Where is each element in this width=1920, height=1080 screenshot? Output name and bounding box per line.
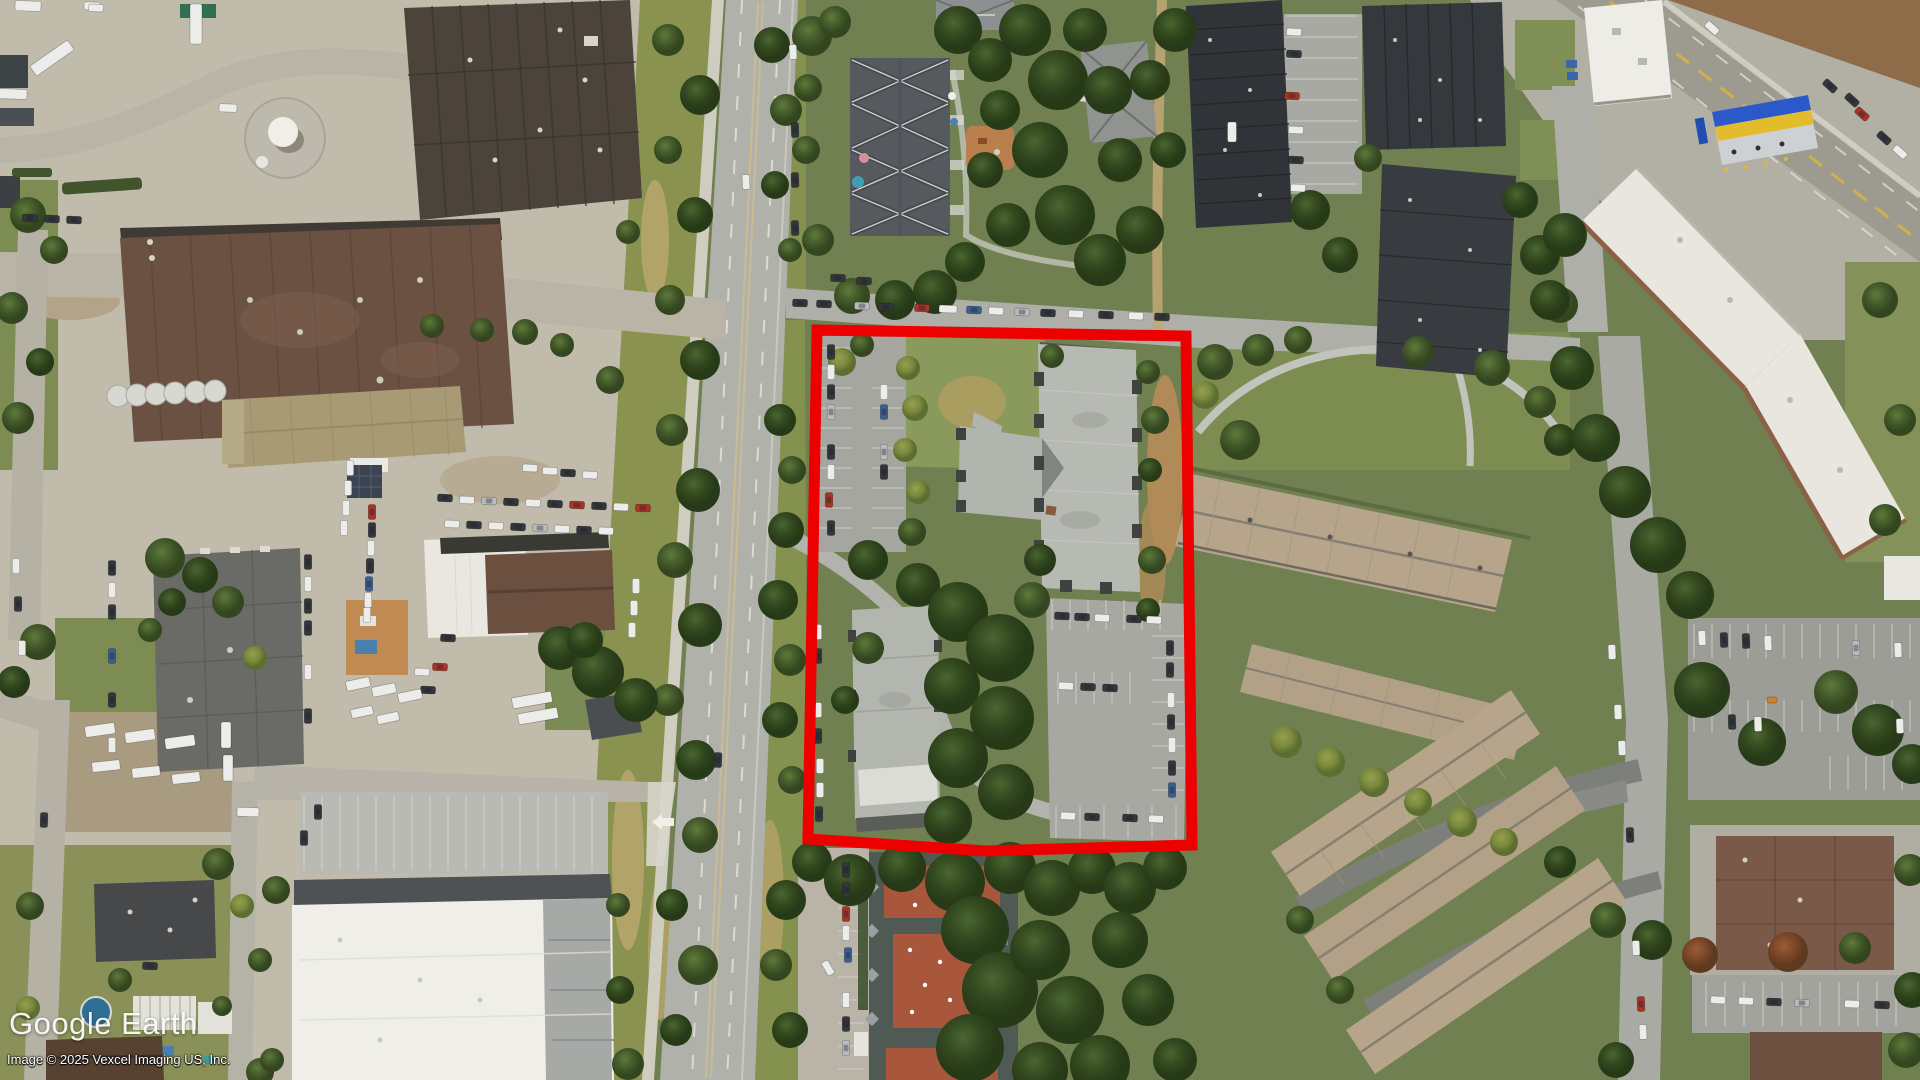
- tree: [1402, 336, 1434, 368]
- tree: [1599, 466, 1651, 518]
- car: [789, 44, 797, 59]
- car: [825, 493, 833, 508]
- car: [613, 503, 628, 511]
- car: [108, 693, 116, 708]
- tree: [1153, 8, 1197, 52]
- tree: [680, 340, 720, 380]
- tree: [1544, 846, 1576, 878]
- car: [842, 883, 850, 898]
- car: [988, 307, 1003, 315]
- tree: [978, 764, 1034, 820]
- car: [880, 465, 888, 480]
- car: [503, 498, 518, 506]
- tree: [212, 996, 232, 1016]
- car: [190, 4, 202, 44]
- car: [582, 471, 597, 479]
- tree: [420, 314, 444, 338]
- car: [223, 755, 233, 781]
- tree: [1326, 976, 1354, 1004]
- tree: [1359, 767, 1389, 797]
- car: [14, 597, 22, 612]
- car: [1167, 693, 1175, 708]
- tree: [1884, 404, 1916, 436]
- tree: [967, 152, 1003, 188]
- car: [1084, 813, 1099, 821]
- tree: [928, 728, 988, 788]
- car: [142, 962, 157, 970]
- tree: [1084, 66, 1132, 114]
- car: [1168, 761, 1176, 776]
- tree: [1197, 344, 1233, 380]
- car: [367, 541, 375, 556]
- car: [1148, 815, 1163, 823]
- car: [628, 623, 636, 638]
- car: [914, 304, 929, 312]
- apartment-charcoal-ne-1: [1362, 2, 1506, 150]
- car: [1794, 999, 1809, 1007]
- car: [1094, 614, 1109, 622]
- car: [1168, 783, 1176, 798]
- car: [525, 499, 540, 507]
- tree: [758, 580, 798, 620]
- car: [939, 305, 957, 313]
- car: [816, 759, 824, 774]
- car: [542, 467, 557, 475]
- tree: [896, 356, 920, 380]
- car: [966, 306, 981, 314]
- tree: [1490, 828, 1518, 856]
- car: [1632, 940, 1640, 955]
- car: [364, 593, 372, 608]
- car: [237, 807, 259, 817]
- brown-building-bottom: [1750, 1032, 1882, 1080]
- car: [827, 365, 835, 380]
- imagery-attribution: Image © 2025 Vexcel Imaging US, Inc.: [7, 1052, 230, 1067]
- car: [304, 709, 312, 724]
- tree: [606, 976, 634, 1004]
- tree: [778, 766, 806, 794]
- car: [569, 501, 584, 509]
- tree: [596, 366, 624, 394]
- tree: [898, 518, 926, 546]
- tree: [212, 586, 244, 618]
- white-building: [292, 874, 614, 1080]
- tree: [924, 796, 972, 844]
- tree: [1130, 60, 1170, 100]
- tree: [1530, 280, 1570, 320]
- tree: [616, 220, 640, 244]
- car: [827, 445, 835, 460]
- tree: [1598, 1042, 1634, 1078]
- car: [830, 274, 845, 282]
- car: [827, 405, 835, 420]
- aerial-imagery: [0, 0, 1920, 1080]
- tree: [652, 24, 684, 56]
- tree: [262, 876, 290, 904]
- townhouse-complex-north: [850, 58, 964, 236]
- tree: [1153, 1038, 1197, 1080]
- tree: [980, 90, 1020, 130]
- car: [432, 663, 447, 671]
- tree: [1544, 424, 1576, 456]
- tree: [1074, 234, 1126, 286]
- tree: [794, 74, 822, 102]
- car: [880, 385, 888, 400]
- car: [1637, 996, 1645, 1011]
- tree: [1010, 920, 1070, 980]
- tree: [1666, 571, 1714, 619]
- car: [1054, 612, 1069, 620]
- car: [344, 481, 352, 496]
- car: [827, 465, 835, 480]
- tree: [660, 1014, 692, 1046]
- car: [1894, 642, 1902, 657]
- rowhouses-ne: [1186, 0, 1292, 228]
- tree: [1682, 937, 1718, 973]
- car: [304, 665, 312, 680]
- car: [1608, 644, 1616, 659]
- tree: [1191, 381, 1219, 409]
- car: [827, 385, 835, 400]
- tree: [893, 438, 917, 462]
- car: [1288, 126, 1303, 134]
- tree: [470, 318, 494, 342]
- tree: [770, 94, 802, 126]
- dark-building-sw: [94, 880, 216, 962]
- car: [842, 1041, 850, 1056]
- car: [304, 599, 312, 614]
- tree: [1290, 190, 1330, 230]
- car: [791, 172, 799, 187]
- car: [792, 299, 807, 307]
- car: [791, 122, 799, 137]
- car: [842, 863, 850, 878]
- industrial-building-dark: [404, 0, 642, 220]
- car: [1286, 28, 1301, 36]
- tree: [1404, 788, 1432, 816]
- tree: [850, 333, 874, 357]
- car: [1720, 632, 1728, 647]
- tree: [1242, 334, 1274, 366]
- pallet-yard: [346, 600, 408, 675]
- tree: [1098, 138, 1142, 182]
- car: [714, 752, 722, 767]
- car: [18, 641, 26, 656]
- tree: [1354, 144, 1382, 172]
- car: [108, 649, 116, 664]
- car: [854, 302, 869, 310]
- car: [300, 831, 308, 846]
- car: [1742, 633, 1750, 648]
- car: [560, 469, 575, 477]
- white-shed: [1884, 556, 1920, 600]
- backyard-pool: [852, 176, 864, 188]
- car: [1738, 997, 1753, 1005]
- tree: [1315, 747, 1345, 777]
- tree: [145, 538, 185, 578]
- tree: [1092, 912, 1148, 968]
- tree: [678, 603, 722, 647]
- tree: [614, 678, 658, 722]
- tree: [1063, 8, 1107, 52]
- car: [365, 577, 373, 592]
- car: [1128, 312, 1143, 320]
- car: [44, 215, 59, 223]
- tree: [774, 644, 806, 676]
- car: [591, 502, 606, 510]
- car: [366, 559, 374, 574]
- tree: [1322, 237, 1358, 273]
- tree: [1862, 282, 1898, 318]
- car: [437, 494, 452, 502]
- car: [66, 216, 81, 224]
- tree: [243, 646, 267, 670]
- tree: [16, 892, 44, 920]
- car: [791, 220, 799, 235]
- car: [1286, 50, 1301, 58]
- car: [1284, 92, 1299, 100]
- tree: [1141, 406, 1169, 434]
- tree: [1590, 902, 1626, 938]
- car: [1766, 998, 1781, 1006]
- car: [1166, 641, 1174, 656]
- tree: [676, 468, 720, 512]
- car: [15, 1, 41, 12]
- car: [304, 621, 312, 636]
- tree: [1502, 182, 1538, 218]
- car: [414, 668, 429, 676]
- ne-parking: [1284, 14, 1362, 194]
- car: [304, 555, 312, 570]
- tree: [768, 512, 804, 548]
- tree: [852, 632, 884, 664]
- tree: [1122, 974, 1174, 1026]
- car: [554, 525, 569, 533]
- car: [1040, 309, 1055, 317]
- white-building-parking: [300, 792, 608, 874]
- tree: [677, 197, 713, 233]
- car: [827, 521, 835, 536]
- tree: [966, 614, 1034, 682]
- tree: [1543, 213, 1587, 257]
- car: [1874, 1001, 1889, 1009]
- tree: [656, 414, 688, 446]
- car: [1146, 616, 1161, 624]
- tree: [762, 702, 798, 738]
- tree: [1036, 976, 1104, 1044]
- car: [1068, 310, 1083, 318]
- tree: [248, 948, 272, 972]
- tree: [158, 588, 186, 616]
- car: [842, 907, 850, 922]
- car: [632, 579, 640, 594]
- google-earth-viewport[interactable]: Google Earth Image © 2025 Vexcel Imaging…: [0, 0, 1920, 1080]
- car: [816, 783, 824, 798]
- tree: [1524, 386, 1556, 418]
- tree: [1040, 344, 1064, 368]
- car: [844, 948, 852, 963]
- car: [742, 174, 750, 189]
- tree: [108, 968, 132, 992]
- car: [1080, 683, 1095, 691]
- tree: [766, 880, 806, 920]
- tree: [1138, 458, 1162, 482]
- tree: [772, 1012, 808, 1048]
- tree: [1814, 670, 1858, 714]
- car: [342, 501, 350, 516]
- car: [816, 300, 831, 308]
- water-tank: [268, 117, 298, 147]
- tree: [182, 557, 218, 593]
- tree: [924, 658, 980, 714]
- car: [368, 505, 376, 520]
- tree: [655, 285, 685, 315]
- tree: [550, 333, 574, 357]
- tree: [1674, 662, 1730, 718]
- tree: [802, 224, 834, 256]
- car: [1098, 311, 1113, 319]
- car: [1126, 615, 1141, 623]
- car: [108, 583, 116, 598]
- tree: [764, 404, 796, 436]
- tree: [1220, 420, 1260, 460]
- car: [880, 445, 888, 460]
- car: [1102, 684, 1117, 692]
- car: [880, 405, 888, 420]
- tree: [138, 618, 162, 642]
- car: [1728, 714, 1736, 729]
- car: [420, 686, 435, 694]
- car: [1896, 718, 1904, 733]
- car: [314, 805, 322, 820]
- car: [1288, 156, 1303, 164]
- car: [346, 461, 354, 476]
- tree: [1474, 350, 1510, 386]
- tree: [1572, 414, 1620, 462]
- car: [1122, 814, 1137, 822]
- car: [481, 497, 496, 505]
- property-se-parking: [1046, 598, 1188, 842]
- car: [444, 520, 459, 528]
- tree: [657, 542, 693, 578]
- car: [368, 523, 376, 538]
- car: [12, 559, 20, 574]
- car: [510, 523, 525, 531]
- tree: [680, 75, 720, 115]
- car: [1074, 613, 1089, 621]
- car: [40, 812, 48, 827]
- car: [522, 464, 537, 472]
- car: [815, 807, 823, 822]
- tree: [656, 889, 688, 921]
- tree: [819, 6, 851, 38]
- tree: [676, 740, 716, 780]
- tree: [875, 280, 915, 320]
- tree: [848, 540, 888, 580]
- tree: [1136, 360, 1160, 384]
- car: [1060, 812, 1075, 820]
- car: [532, 524, 547, 532]
- tree: [1270, 726, 1302, 758]
- car: [1614, 704, 1622, 719]
- tree: [778, 238, 802, 262]
- car: [1228, 122, 1237, 142]
- car: [1852, 640, 1860, 655]
- tree: [999, 4, 1051, 56]
- tree: [1286, 906, 1314, 934]
- tree: [567, 622, 603, 658]
- car: [598, 527, 613, 535]
- tree: [831, 686, 859, 714]
- car: [108, 561, 116, 576]
- car: [1168, 738, 1176, 753]
- car: [440, 634, 455, 642]
- tree: [230, 894, 254, 918]
- tree: [1550, 346, 1594, 390]
- tree: [260, 1048, 284, 1072]
- tree: [936, 1014, 1004, 1080]
- car: [1844, 1000, 1859, 1008]
- car: [488, 522, 503, 530]
- tree: [678, 945, 718, 985]
- tree: [754, 27, 790, 63]
- tree: [1869, 504, 1901, 536]
- tree: [1138, 546, 1166, 574]
- tree: [606, 893, 630, 917]
- car: [221, 722, 231, 748]
- umbrella: [859, 153, 869, 163]
- tree: [945, 242, 985, 282]
- car: [630, 601, 638, 616]
- car: [878, 303, 893, 311]
- tree: [1028, 50, 1088, 110]
- car: [576, 526, 591, 534]
- tree: [1035, 185, 1095, 245]
- tree: [26, 348, 54, 376]
- car: [1754, 716, 1762, 731]
- car: [842, 926, 850, 941]
- car: [842, 1017, 850, 1032]
- car: [363, 608, 371, 623]
- car: [1618, 740, 1626, 755]
- tree: [1839, 932, 1871, 964]
- tree: [1284, 326, 1312, 354]
- car: [304, 577, 312, 592]
- car: [1014, 308, 1029, 316]
- car: [1626, 827, 1634, 842]
- tree: [1024, 544, 1056, 576]
- car: [1767, 697, 1777, 703]
- car: [1710, 996, 1725, 1004]
- car: [1154, 313, 1169, 321]
- tree: [1012, 122, 1068, 178]
- car: [340, 521, 348, 536]
- car: [108, 605, 116, 620]
- tree: [1116, 206, 1164, 254]
- car: [842, 993, 850, 1008]
- tree: [682, 817, 718, 853]
- tree: [778, 456, 806, 484]
- tree: [1150, 132, 1186, 168]
- car: [1167, 715, 1175, 730]
- tree: [906, 480, 930, 504]
- car: [1166, 663, 1174, 678]
- car: [88, 4, 103, 12]
- tree: [2, 402, 34, 434]
- apartment-charcoal-ne-2: [1376, 164, 1516, 378]
- car: [1058, 682, 1073, 690]
- car: [219, 104, 237, 113]
